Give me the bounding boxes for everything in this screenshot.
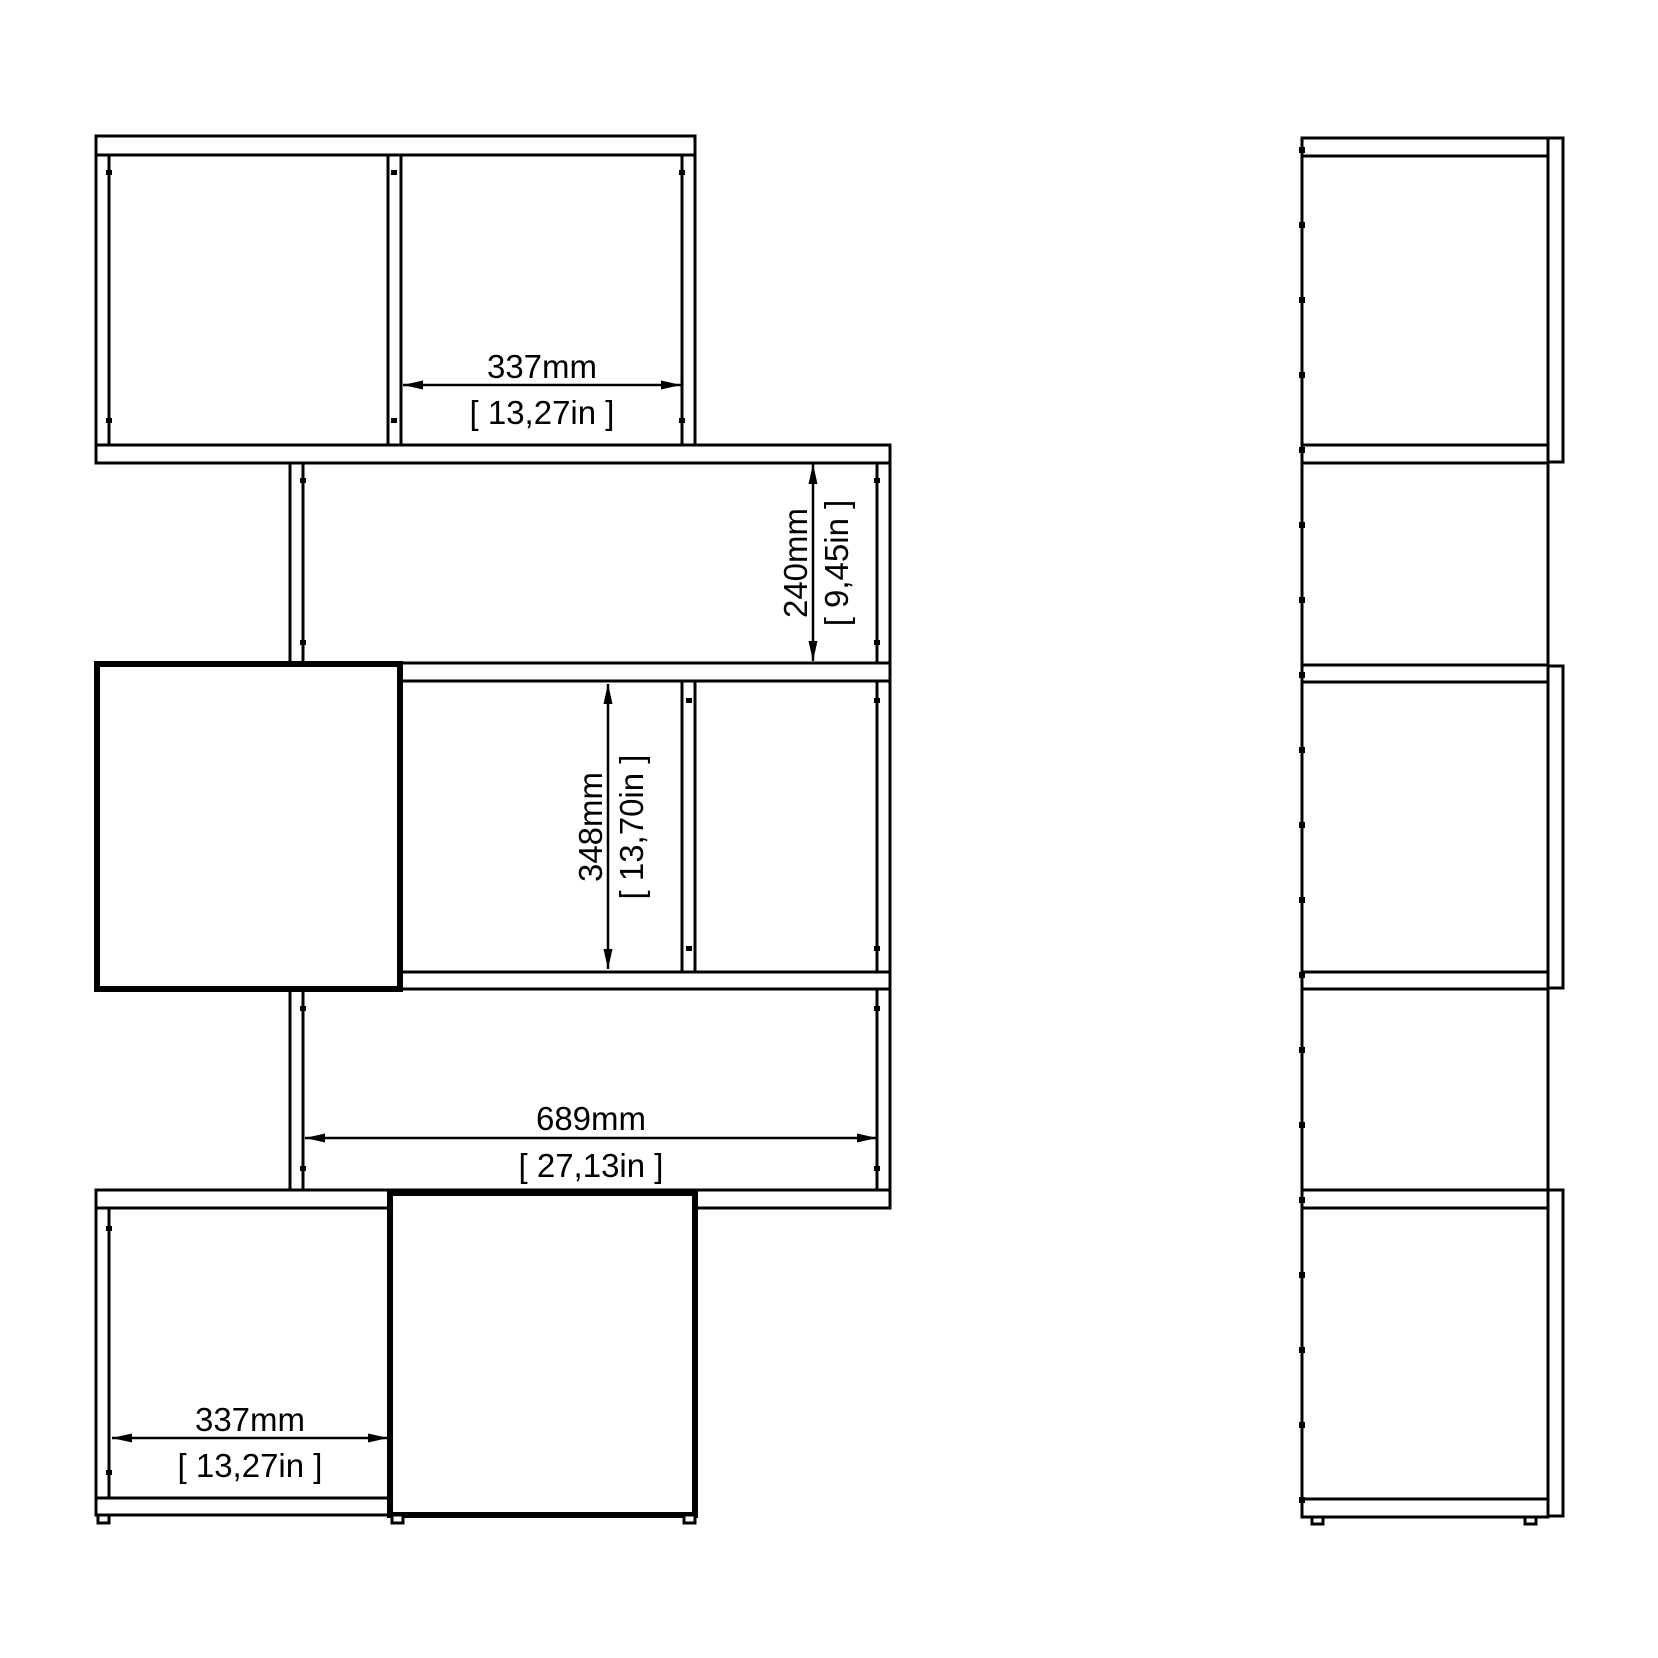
front-row3-divider	[682, 681, 695, 972]
front-row1-right-panel	[682, 155, 695, 445]
dimension-label-inches: [ 13,27in ]	[470, 394, 615, 431]
front-row5-left-panel	[96, 1208, 109, 1498]
front-foot-right	[684, 1515, 695, 1523]
side-foot-front	[1312, 1517, 1323, 1524]
front-foot-middle	[392, 1515, 403, 1523]
arrow-left-icon	[403, 381, 423, 390]
side-foot-back	[1525, 1517, 1536, 1524]
front-foot-left	[98, 1515, 109, 1523]
side-top-board	[1302, 138, 1548, 156]
dimension-label-inches: [ 27,13in ]	[519, 1147, 664, 1184]
side-door-edge-top	[1548, 138, 1563, 462]
side-bottom-board	[1302, 1499, 1548, 1517]
front-view	[96, 136, 890, 1523]
arrow-right-icon	[661, 381, 681, 390]
side-shelf-3	[1302, 665, 1548, 682]
front-row1-divider	[388, 155, 401, 445]
dimension-interior-width: 689mm [ 27,13in ]	[305, 1100, 877, 1184]
front-shelf-2	[96, 445, 890, 463]
dimension-middle-height: 348mm [ 13,70in ]	[572, 684, 650, 969]
side-shelf-5	[1302, 1190, 1548, 1208]
arrow-right-icon	[857, 1134, 877, 1143]
arrow-up-icon	[604, 684, 613, 704]
front-middle-door	[97, 664, 400, 989]
arrow-right-icon	[368, 1434, 388, 1443]
front-row4-right-panel	[877, 989, 890, 1190]
dimension-label-mm: 348mm	[572, 772, 609, 882]
dimension-label-mm: 337mm	[195, 1401, 305, 1438]
side-outline	[1302, 138, 1548, 1517]
front-row3-right-panel	[877, 681, 890, 972]
dimension-label-mm: 240mm	[777, 508, 814, 618]
side-shelf-4	[1302, 972, 1548, 989]
arrow-left-icon	[305, 1134, 325, 1143]
dimension-label-inches: [ 9,45in ]	[818, 500, 855, 627]
dimension-top-width: 337mm [ 13,27in ]	[403, 348, 681, 431]
front-row1-left-panel	[96, 155, 109, 445]
front-top-board	[96, 136, 695, 155]
technical-drawing-page: 337mm [ 13,27in ] 240mm [ 9,45in ] 348mm…	[0, 0, 1658, 1658]
front-bottom-door	[390, 1193, 695, 1515]
side-door-edge-middle	[1548, 666, 1563, 988]
arrow-down-icon	[604, 949, 613, 969]
front-row2-right-panel	[877, 463, 890, 663]
front-row2-left-panel	[290, 463, 303, 663]
arrow-up-icon	[809, 464, 818, 484]
dimension-shelf-height: 240mm [ 9,45in ]	[777, 464, 855, 661]
dimension-label-inches: [ 13,27in ]	[178, 1447, 323, 1484]
front-row4-left-panel	[290, 989, 303, 1190]
dimension-label-mm: 337mm	[487, 348, 597, 385]
arrow-down-icon	[809, 641, 818, 661]
dimension-label-inches: [ 13,70in ]	[613, 755, 650, 900]
dimension-label-mm: 689mm	[536, 1100, 646, 1137]
arrow-left-icon	[112, 1434, 132, 1443]
side-view	[1299, 138, 1563, 1524]
side-shelf-2	[1302, 445, 1548, 463]
side-door-edge-bottom	[1548, 1190, 1563, 1516]
dimension-bottom-width: 337mm [ 13,27in ]	[112, 1401, 388, 1484]
drawing-svg: 337mm [ 13,27in ] 240mm [ 9,45in ] 348mm…	[0, 0, 1658, 1658]
